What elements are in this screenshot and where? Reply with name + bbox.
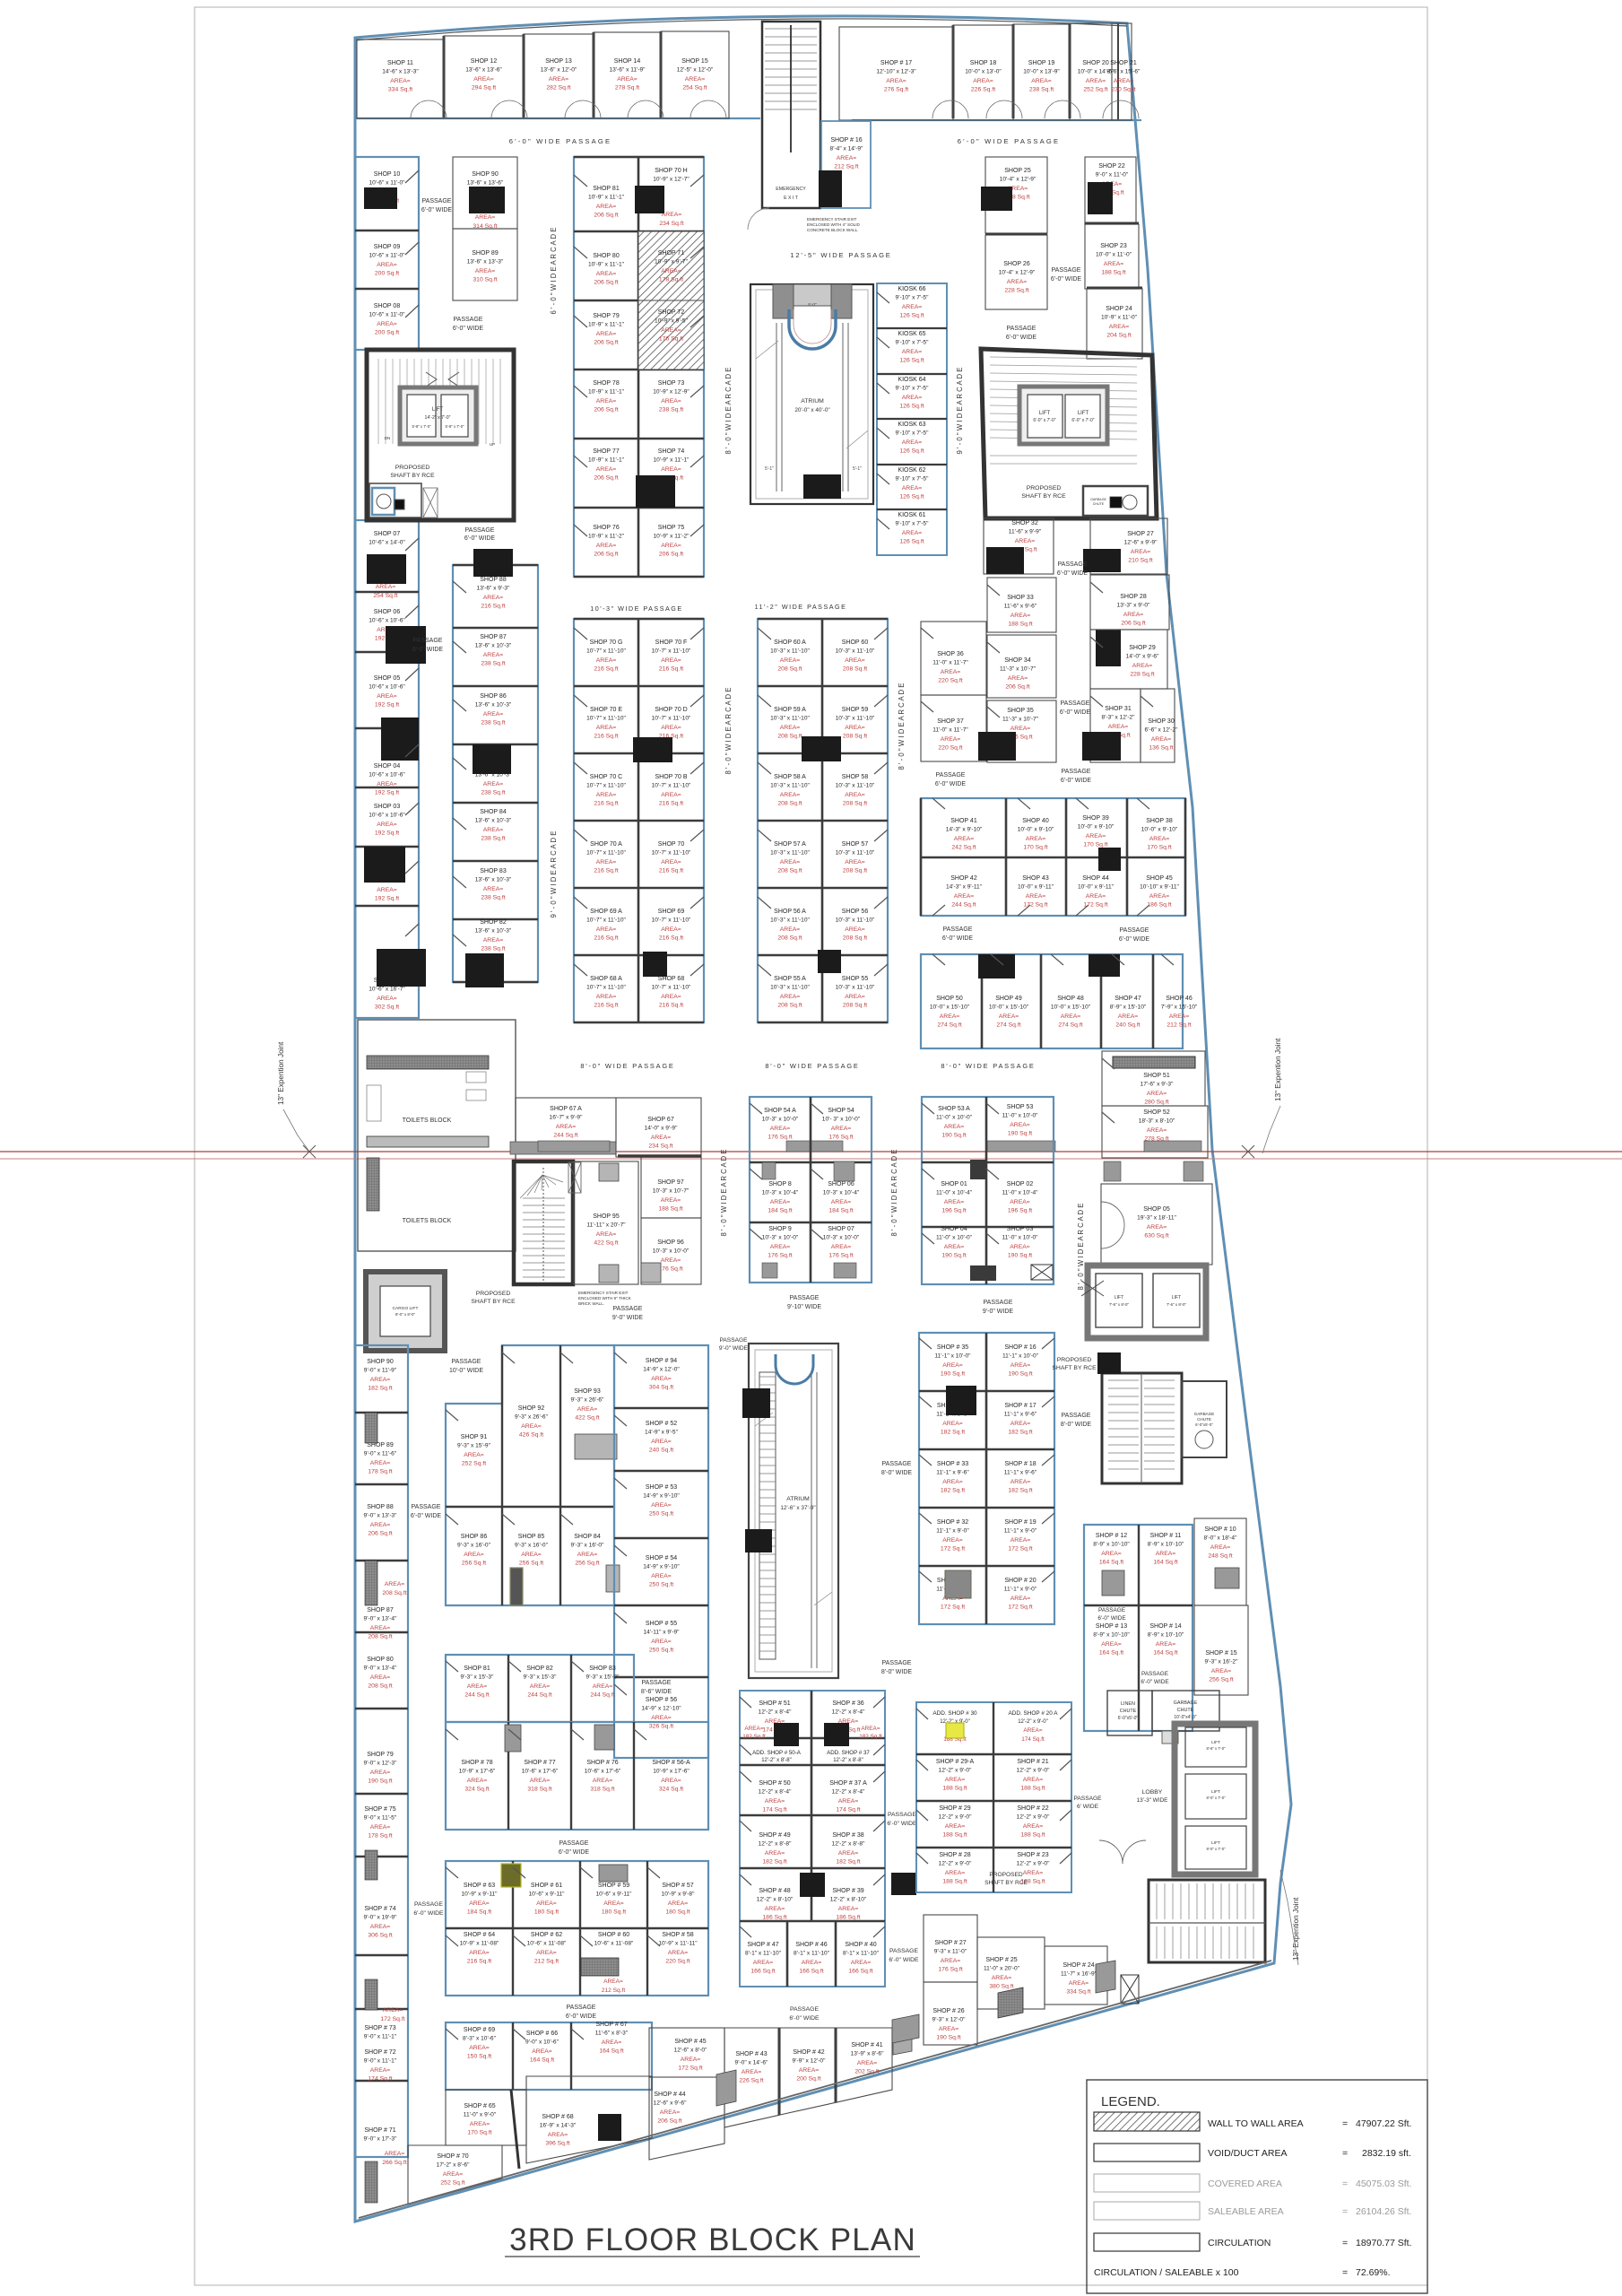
svg-text:212 Sq.ft: 212 Sq.ft [602,1987,626,1994]
svg-text:10'- 3" x 10'-0": 10'- 3" x 10'-0" [822,1117,861,1123]
svg-text:SHOP 04: SHOP 04 [941,1226,967,1232]
svg-text:SHOP 43: SHOP 43 [1022,875,1049,882]
svg-text:8'-1" x 11'-10": 8'-1" x 11'-10" [745,1951,782,1957]
svg-text:192 Sq.ft: 192 Sq.ft [375,896,399,902]
svg-text:9'-3" x 26'-6": 9'-3" x 26'-6" [515,1414,549,1421]
svg-text:SHOP 60 A: SHOP 60 A [774,639,806,646]
svg-text:PASSAGE: PASSAGE [452,1359,481,1365]
svg-text:11'-0" x 9'-0": 11'-0" x 9'-0" [464,2112,497,2118]
svg-text:SHOP # 61: SHOP # 61 [531,1883,562,1889]
svg-text:SHOP 34: SHOP 34 [1004,657,1031,664]
svg-text:180 Sq.ft: 180 Sq.ft [665,1909,690,1916]
svg-text:SHOP # 57: SHOP # 57 [662,1883,693,1889]
svg-text:SHOP 96: SHOP 96 [657,1239,684,1246]
svg-text:CHUTE: CHUTE [1093,502,1105,506]
svg-text:SHOP # 13: SHOP # 13 [1096,1623,1127,1630]
svg-text:10'-6" x 17'-6": 10'-6" x 17'-6" [522,1769,559,1775]
svg-text:172 Sq.ft: 172 Sq.ft [941,1546,965,1552]
svg-text:238 Sq.ft: 238 Sq.ft [481,946,505,952]
svg-text:10'-9" x 9'-11": 10'-9" x 9'-11" [461,1892,498,1898]
svg-text:AREA=: AREA= [577,1406,598,1413]
svg-text:240 Sq.ft: 240 Sq.ft [649,1448,673,1454]
svg-text:AREA=: AREA= [1026,893,1046,900]
svg-text:5'-1": 5'-1" [765,466,774,472]
svg-text:11'-6" x 8'-3": 11'-6" x 8'-3" [595,2031,629,2037]
svg-text:SHOP 50: SHOP 50 [936,996,963,1002]
svg-text:6'-0" WIDE: 6'-0" WIDE [942,935,973,942]
svg-text:AREA=: AREA= [370,1377,391,1383]
svg-text:426 Sq.ft: 426 Sq.ft [519,1432,543,1439]
svg-text:SHOP # 78: SHOP # 78 [461,1760,492,1766]
svg-text:SHOP 20: SHOP 20 [1082,60,1109,66]
svg-text:SHOP # 19: SHOP # 19 [1004,1519,1036,1526]
svg-text:PASSAGE: PASSAGE [790,1295,820,1301]
svg-text:SHOP # 27: SHOP # 27 [934,1940,966,1946]
svg-text:EMERGENCY STAIR EXIT: EMERGENCY STAIR EXIT [807,217,857,222]
svg-text:SHOP 48: SHOP 48 [1057,996,1084,1002]
svg-text:10'-3" x 10'-4": 10'-3" x 10'-4" [762,1190,799,1196]
svg-text:8'-0" WIDE PASSAGE: 8'-0" WIDE PASSAGE [765,1062,859,1070]
svg-text:SHOP 11: SHOP 11 [387,60,413,66]
svg-text:250 Sq.ft: 250 Sq.ft [649,1582,673,1588]
svg-text:14'-0" x 9'-9": 14'-0" x 9'-9" [645,1126,679,1132]
svg-text:17'-6" x 9'-3": 17'-6" x 9'-3" [1141,1082,1175,1088]
svg-text:6'-0" WIDE: 6'-0" WIDE [1141,1679,1168,1685]
svg-text:10'-6" x 11'-0": 10'-6" x 11'-0" [369,253,405,259]
svg-text:9'-10" x 7'-5": 9'-10" x 7'-5" [896,430,930,437]
svg-text:SHOP # 40: SHOP # 40 [845,1942,876,1948]
svg-text:AREA=: AREA= [886,78,906,84]
svg-text:KIOSK 62: KIOSK 62 [898,467,925,474]
svg-text:AREA=: AREA= [1147,1224,1167,1231]
svg-text:10'-0" WIDE: 10'-0" WIDE [449,1368,483,1374]
svg-text:172 Sq.ft: 172 Sq.ft [380,2016,404,2022]
svg-text:SHOP 67 A: SHOP 67 A [550,1106,582,1112]
svg-text:SHOP # 45: SHOP # 45 [674,2039,706,2045]
svg-text:SHOP # 46: SHOP # 46 [795,1942,827,1948]
svg-text:SHOP 05: SHOP 05 [374,675,401,682]
svg-text:9'-0" x 11'-1": 9'-0" x 11'-1" [364,2034,397,2040]
svg-text:AREA=: AREA= [577,1552,598,1558]
svg-text:SHOP 83: SHOP 83 [589,1665,616,1672]
svg-text:SHOP 28: SHOP 28 [1120,594,1147,600]
svg-text:10'-0" x 9'-10": 10'-0" x 9'-10" [1141,827,1178,833]
svg-text:PASSAGE: PASSAGE [1007,326,1037,332]
svg-text:ENCLOSED WITH 9" THICK: ENCLOSED WITH 9" THICK [578,1296,632,1300]
svg-text:10'-3" x 11'-10": 10'-3" x 11'-10" [770,716,810,722]
svg-text:LIFT: LIFT [1172,1295,1181,1300]
svg-text:11'-6" x 9'-6": 11'-6" x 9'-6" [1004,604,1037,610]
svg-text:VOID/DUCT AREA: VOID/DUCT AREA [1208,2148,1288,2159]
svg-text:ADD. SHOP # 50-A: ADD. SHOP # 50-A [752,1750,802,1756]
svg-text:9'-0" x 11'-0": 9'-0" x 11'-0" [1096,172,1129,178]
svg-text:SHOP # 77: SHOP # 77 [524,1760,555,1766]
svg-text:AREA=: AREA= [1023,1823,1044,1830]
svg-text:334 Sq.ft: 334 Sq.ft [1066,1989,1090,1996]
svg-text:PASSAGE: PASSAGE [1061,700,1090,707]
svg-text:AREA=: AREA= [902,349,923,355]
svg-text:AREA=: AREA= [521,1552,542,1558]
svg-text:182 Sq.ft: 182 Sq.ft [941,1430,965,1436]
svg-text:10'-6" x 9'-11": 10'-6" x 9'-11" [595,1892,632,1898]
svg-text:250 Sq.ft: 250 Sq.ft [649,1648,673,1654]
svg-text:KIOSK 66: KIOSK 66 [898,286,925,292]
svg-text:SHOP # 51: SHOP # 51 [759,1700,790,1707]
svg-text:9'-0" WIDE: 9'-0" WIDE [983,1309,1013,1315]
svg-text:SHOP 77: SHOP 77 [593,448,620,455]
svg-text:AREA=: AREA= [370,1522,391,1528]
svg-text:248 Sq.ft: 248 Sq.ft [1208,1553,1232,1560]
svg-text:206 Sq.ft: 206 Sq.ft [1121,621,1145,627]
svg-text:11'-1" x 9'-0": 11'-1" x 9'-0" [936,1528,969,1535]
svg-text:SHOP 70 E: SHOP 70 E [590,707,622,713]
svg-text:SHOP 72: SHOP 72 [658,309,685,316]
svg-text:234 Sq.ft: 234 Sq.ft [659,221,683,227]
svg-text:10'-0" x 9'-11": 10'-0" x 9'-11" [1018,884,1054,891]
svg-text:AREA=: AREA= [521,1423,542,1430]
svg-text:396 Sq.ft: 396 Sq.ft [545,2141,569,2147]
svg-text:212 Sq.ft: 212 Sq.ft [834,164,858,170]
svg-text:=: = [1342,2118,1348,2129]
svg-text:10'-4" x 12'-9": 10'-4" x 12'-9" [1000,177,1037,183]
svg-text:AREA=: AREA= [593,1778,613,1784]
svg-text:12'-2" x 9'-0": 12'-2" x 9'-0" [1017,1814,1051,1821]
svg-text:12'-6" x 8'-0": 12'-6" x 8'-0" [674,2048,708,2054]
svg-text:8'-9" x 15'-10": 8'-9" x 15'-10" [1110,1004,1147,1011]
svg-text:SHOP 68: SHOP 68 [658,976,685,982]
svg-text:AREA=: AREA= [838,1906,859,1912]
svg-text:7'-6" x 8'-0": 7'-6" x 8'-0" [1109,1302,1130,1307]
svg-text:238 Sq.ft: 238 Sq.ft [481,661,505,667]
svg-text:AREA=: AREA= [1132,663,1153,669]
svg-text:6'-0" WIDE: 6'-0" WIDE [935,781,966,787]
svg-text:6'-0" WIDE: 6'-0" WIDE [1057,570,1088,577]
svg-text:10'-3" x 11'-10": 10'-3" x 11'-10" [770,648,810,655]
svg-text:9'-0" x 13'-4": 9'-0" x 13'-4" [364,1616,398,1622]
svg-text:=: = [1342,2267,1348,2278]
svg-text:9'-10" x 7'-5": 9'-10" x 7'-5" [896,476,930,483]
svg-text:11'-11" x 20'-7": 11'-11" x 20'-7" [586,1222,626,1229]
svg-text:SHOP 59: SHOP 59 [842,707,869,713]
svg-text:SHOP 70 H: SHOP 70 H [655,168,687,174]
svg-text:244 Sq.ft: 244 Sq.ft [590,1692,614,1699]
svg-text:UP: UP [490,442,495,447]
svg-text:SHOP # 33: SHOP # 33 [937,1461,968,1467]
svg-text:206 Sq.ft: 206 Sq.ft [594,340,618,346]
svg-text:208 Sq.ft: 208 Sq.ft [843,734,867,740]
svg-text:AREA=: AREA= [385,1581,405,1587]
svg-text:AREA=: AREA= [954,836,975,842]
svg-text:AREA=: AREA= [753,1960,774,1966]
svg-text:238 Sq.ft: 238 Sq.ft [481,790,505,796]
svg-text:8'-9" x 10'-10": 8'-9" x 10'-10" [1148,1542,1184,1548]
svg-text:SHOP 07: SHOP 07 [374,531,401,537]
svg-text:9'-3" x 16'-0": 9'-3" x 16'-0" [571,1543,605,1549]
svg-text:AREA=: AREA= [942,1362,963,1369]
svg-text:256 Sq.ft: 256 Sq.ft [575,1561,599,1567]
svg-text:PASSAGE: PASSAGE [414,1901,443,1908]
svg-text:AREA=: AREA= [1131,549,1151,555]
svg-text:ENCLOSED WITH 4" SOLID: ENCLOSED WITH 4" SOLID [807,222,860,227]
svg-text:208 Sq.ft: 208 Sq.ft [777,935,802,942]
svg-text:AREA=: AREA= [780,926,801,933]
svg-text:AREA=: AREA= [377,822,397,828]
svg-text:10'-9" x 11'-1": 10'-9" x 11'-1" [653,457,690,464]
svg-text:238 Sq.ft: 238 Sq.ft [1029,87,1054,93]
svg-text:PASSAGE: PASSAGE [1058,561,1088,568]
svg-text:SHOP # 38: SHOP # 38 [832,1832,863,1839]
svg-text:7'-6" x 8'-0": 7'-6" x 8'-0" [1167,1302,1187,1307]
svg-text:AREA=: AREA= [617,76,638,83]
svg-text:ADD. SHOP # 30: ADD. SHOP # 30 [932,1710,977,1717]
svg-text:LIFT: LIFT [1211,1740,1220,1745]
svg-text:SHOP # 55: SHOP # 55 [646,1621,677,1627]
svg-text:AREA=: AREA= [1008,675,1028,682]
svg-text:9'-3" x 15'-3": 9'-3" x 15'-3" [524,1674,558,1681]
svg-text:SHOP # 53: SHOP # 53 [646,1484,677,1491]
svg-text:AREA=: AREA= [370,1625,391,1631]
svg-text:AREA=: AREA= [596,543,617,549]
svg-text:14'-9" x 9'-5": 14'-9" x 9'-5" [645,1430,679,1436]
svg-text:11'-0" x 10'-0": 11'-0" x 10'-0" [1002,1235,1038,1241]
svg-text:ATRIUM: ATRIUM [801,398,824,404]
svg-text:126 Sq.ft: 126 Sq.ft [899,358,924,364]
svg-text:8'-4" x 14'-9": 8'-4" x 14'-9" [830,146,864,152]
svg-text:SHOP 76: SHOP 76 [593,525,620,531]
svg-text:SHAFT BY RCE: SHAFT BY RCE [1021,493,1066,500]
svg-text:AREA=: AREA= [1156,1551,1176,1557]
svg-text:8'-3" x 12'-2": 8'-3" x 12'-2" [1102,715,1136,721]
svg-text:SHOP # 43: SHOP # 43 [735,2051,767,2057]
svg-text:10'-6" x 10'-6": 10'-6" x 10'-6" [369,813,405,819]
svg-text:226 Sq.ft: 226 Sq.ft [739,2078,763,2084]
svg-text:9'-0" x 13'-4": 9'-0" x 13'-4" [364,1665,398,1672]
svg-text:AREA=: AREA= [377,693,397,700]
svg-text:164 Sq.ft: 164 Sq.ft [1153,1560,1177,1566]
svg-text:AREA=: AREA= [661,994,681,1000]
svg-text:AREA=: AREA= [954,893,975,900]
svg-text:PASSAGE: PASSAGE [1062,1413,1091,1419]
svg-text:SHOP # 25: SHOP # 25 [985,1957,1017,1963]
svg-text:SHOP 88: SHOP 88 [480,577,507,583]
svg-text:SHOP # 70: SHOP # 70 [437,2153,468,2160]
svg-text:6'-0" WIDE: 6'-0" WIDE [1119,936,1149,943]
svg-text:SHOP # 37 A: SHOP # 37 A [829,1780,867,1787]
svg-text:13'-6" x 13'-3": 13'-6" x 13'-3" [467,259,504,265]
svg-text:AREA=: AREA= [661,466,681,473]
svg-text:AREA=: AREA= [661,1778,681,1784]
svg-text:3RD FLOOR BLOCK PLAN: 3RD FLOOR BLOCK PLAN [509,2222,916,2257]
svg-text:9 ' - 0 " W I D E A R C A: 9 ' - 0 " W I D E A R C A D E [550,831,558,918]
svg-text:8'-9" x 10'-10": 8'-9" x 10'-10" [1148,1632,1184,1639]
svg-text:AREA=: AREA= [941,669,961,675]
svg-text:10'-7" x 11'-10": 10'-7" x 11'-10" [652,985,691,991]
svg-text:AREA=: AREA= [1023,1870,1044,1876]
svg-text:126 Sq.ft: 126 Sq.ft [899,404,924,410]
svg-text:250 Sq.ft: 250 Sq.ft [649,1511,673,1518]
svg-text:9'-0" x 11'-6": 9'-0" x 11'-6" [364,1451,397,1457]
svg-text:180 Sq.ft: 180 Sq.ft [534,1909,559,1916]
svg-text:9'-10" WIDE: 9'-10" WIDE [787,1304,821,1310]
svg-text:188 Sq.ft: 188 Sq.ft [942,1786,967,1792]
svg-text:PASSAGE: PASSAGE [984,1300,1013,1306]
svg-text:SHOP 03: SHOP 03 [1007,1226,1034,1232]
svg-text:10'-3" x 11'-10": 10'-3" x 11'-10" [770,783,810,789]
svg-text:6'-0" x 7'-0": 6'-0" x 7'-0" [1033,418,1055,423]
svg-text:SHOP 41: SHOP 41 [950,818,977,824]
svg-text:220 Sq.ft: 220 Sq.ft [938,678,962,684]
svg-text:AREA=: AREA= [464,1552,484,1558]
svg-text:AREA=: AREA= [770,1244,791,1250]
svg-text:AREA=: AREA= [1023,1777,1044,1783]
svg-text:SHOP 84: SHOP 84 [480,809,507,815]
svg-text:SHOP 81: SHOP 81 [464,1665,490,1672]
svg-text:206 Sq.ft: 206 Sq.ft [657,2118,681,2125]
svg-text:AREA=: AREA= [765,1906,785,1912]
svg-text:SHOP 89: SHOP 89 [472,250,499,257]
svg-text:334 Sq.ft: 334 Sq.ft [388,87,412,93]
svg-text:12'-2" x 9'-0": 12'-2" x 9'-0" [939,1768,973,1774]
svg-text:PASSAGE: PASSAGE [882,1461,912,1467]
svg-text:AREA=: AREA= [370,1460,391,1466]
svg-text:SHOP # 74: SHOP # 74 [364,1906,395,1912]
svg-text:AREA=: AREA= [483,595,504,601]
svg-text:SHOP 70 D: SHOP 70 D [655,707,687,713]
svg-text:GARBAGE: GARBAGE [1194,1412,1215,1416]
svg-text:AREA=: AREA= [376,584,396,590]
svg-text:PASSAGE: PASSAGE [889,1948,918,1954]
svg-text:AREA=: AREA= [940,1013,960,1020]
svg-text:SHOP 46: SHOP 46 [1166,996,1193,1002]
svg-text:10'-7" x 11'-10": 10'-7" x 11'-10" [586,985,626,991]
svg-text:AREA=: AREA= [1149,893,1170,900]
svg-text:10'-9" x 17'-6": 10'-9" x 17'-6" [459,1769,496,1775]
svg-text:SHOP # 44: SHOP # 44 [654,2092,685,2098]
svg-text:SHOP # 54: SHOP # 54 [646,1555,677,1561]
svg-text:10'-10" x 9'-11": 10'-10" x 9'-11" [1140,884,1179,891]
svg-text:SHOP # 62: SHOP # 62 [531,1932,562,1938]
svg-text:AREA=: AREA= [1010,1596,1031,1602]
svg-text:ATRIUM: ATRIUM [786,1496,810,1502]
svg-text:AREA=: AREA= [661,725,681,731]
svg-text:SHOP 93: SHOP 93 [574,1388,601,1395]
svg-text:SHOP 75: SHOP 75 [658,525,685,531]
svg-text:SHOP 70 B: SHOP 70 B [655,774,687,780]
svg-text:9'-3" x 11'-0": 9'-3" x 11'-0" [934,1949,967,1955]
svg-text:208 Sq.ft: 208 Sq.ft [843,868,867,874]
svg-text:178 Sq.ft: 178 Sq.ft [368,1833,392,1839]
svg-text:SHOP 83: SHOP 83 [480,868,507,874]
svg-text:AREA=: AREA= [651,1715,672,1721]
svg-text:=: = [1342,2206,1348,2217]
svg-text:SHOP 81: SHOP 81 [593,186,620,192]
svg-text:12'-6" x 37'-9": 12'-6" x 37'-9" [780,1505,815,1511]
svg-text:AREA=: AREA= [1086,78,1106,84]
svg-text:SHOP 68 A: SHOP 68 A [590,976,622,982]
svg-text:LOBBY: LOBBY [1142,1789,1163,1796]
svg-text:PASSAGE: PASSAGE [1098,1607,1125,1613]
svg-text:SHOP 42: SHOP 42 [950,875,977,882]
svg-text:SHOP # 94: SHOP # 94 [646,1358,677,1364]
svg-text:10'-9" x 9'-8": 10'-9" x 9'-8" [662,1892,696,1898]
svg-text:326 Sq.ft: 326 Sq.ft [649,1724,673,1730]
svg-text:AREA=: AREA= [1010,726,1031,732]
svg-text:AREA=: AREA= [1108,724,1129,730]
svg-text:AREA=: AREA= [838,1798,859,1805]
svg-text:7'-9" x 15'-10": 7'-9" x 15'-10" [1161,1004,1198,1011]
svg-text:310 Sq.ft: 310 Sq.ft [473,277,497,283]
svg-text:166 Sq.ft: 166 Sq.ft [750,1969,775,1975]
svg-text:LIFT: LIFT [1039,411,1051,416]
svg-text:6'-0" WIDE: 6'-0" WIDE [889,1957,919,1963]
svg-text:8 ' - 0 " W I D E A R C A: 8 ' - 0 " W I D E A R C A D E [898,683,906,770]
svg-text:SHOP 06: SHOP 06 [828,1181,854,1187]
svg-text:10'-0" x 9'-10": 10'-0" x 9'-10" [1018,827,1054,833]
svg-text:AREA=: AREA= [651,1376,672,1382]
svg-text:AREA=: AREA= [1010,1244,1030,1250]
svg-text:SHOP 70 F: SHOP 70 F [655,639,688,646]
svg-text:AREA=: AREA= [902,530,923,536]
svg-text:8'-3" x 10'-6": 8'-3" x 10'-6" [463,2036,497,2042]
svg-text:302 Sq.ft: 302 Sq.ft [375,1004,399,1011]
svg-text:184 Sq.ft: 184 Sq.ft [768,1208,792,1214]
svg-text:SHOP # 11: SHOP # 11 [1150,1533,1182,1539]
svg-text:11'-1" x 9'-0": 11'-1" x 9'-0" [1004,1528,1037,1535]
svg-text:AREA=: AREA= [469,2045,490,2051]
svg-text:PASSAGE: PASSAGE [465,527,495,534]
svg-text:8'-1" x 11'-10": 8'-1" x 11'-10" [843,1951,880,1957]
svg-text:176 Sq.ft: 176 Sq.ft [828,1253,853,1259]
svg-text:10'-0" x 13'-9": 10'-0" x 13'-9" [1023,69,1060,75]
svg-text:AREA=: AREA= [1010,1122,1030,1128]
svg-text:AREA=: AREA= [464,1452,484,1458]
svg-text:SHOP 92: SHOP 92 [518,1405,545,1412]
svg-text:TOILETS BLOCK: TOILETS BLOCK [403,1118,452,1124]
svg-text:AREA=: AREA= [944,1199,965,1205]
svg-text:AREA=: AREA= [469,1900,490,1907]
svg-text:10'-9" x 9'-5": 10'-9" x 9'-5" [655,318,689,325]
svg-text:AREA=: AREA= [1026,836,1046,842]
svg-text:164 Sq.ft: 164 Sq.ft [1099,1650,1123,1657]
svg-text:6'-0" WIDE: 6'-0" WIDE [464,535,495,542]
svg-text:256 Sq.ft: 256 Sq.ft [519,1561,543,1567]
svg-text:AREA=: AREA= [370,2067,391,2074]
svg-text:AREA=: AREA= [1210,1544,1231,1551]
svg-text:SHOP # 17: SHOP # 17 [880,60,912,66]
svg-text:AREA=: AREA= [780,994,801,1000]
svg-text:SHOP 84: SHOP 84 [574,1534,601,1540]
svg-text:208 Sq.ft: 208 Sq.ft [777,1003,802,1009]
svg-text:LIFT: LIFT [432,407,444,413]
svg-text:SHOP 54: SHOP 54 [828,1108,854,1114]
svg-text:PASSAGE: PASSAGE [613,1306,643,1312]
svg-text:10'-3" x 10'-0": 10'-3" x 10'-0" [762,1235,799,1241]
svg-text:304 Sq.ft: 304 Sq.ft [649,1385,673,1391]
svg-text:14'-9" x 9'-10": 14'-9" x 9'-10" [643,1564,680,1570]
svg-text:SHOP 49: SHOP 49 [995,996,1022,1002]
svg-text:SHOP 38: SHOP 38 [1146,818,1173,824]
svg-text:SHOP 9: SHOP 9 [768,1226,792,1232]
svg-text:14'-2" x 7'-0": 14'-2" x 7'-0" [424,415,450,421]
svg-text:278 Sq.ft: 278 Sq.ft [615,85,639,91]
svg-text:12'-2" x 9'-0": 12'-2" x 9'-0" [1017,1768,1051,1774]
svg-text:182 Sq.ft: 182 Sq.ft [368,1386,392,1392]
svg-text:240 Sq.ft: 240 Sq.ft [1115,1022,1140,1029]
svg-text:AREA=: AREA= [370,1924,391,1930]
svg-text:238 Sq.ft: 238 Sq.ft [481,836,505,842]
svg-text:AREA=: AREA= [1118,1013,1139,1020]
svg-text:188 Sq.ft: 188 Sq.ft [942,1832,967,1839]
